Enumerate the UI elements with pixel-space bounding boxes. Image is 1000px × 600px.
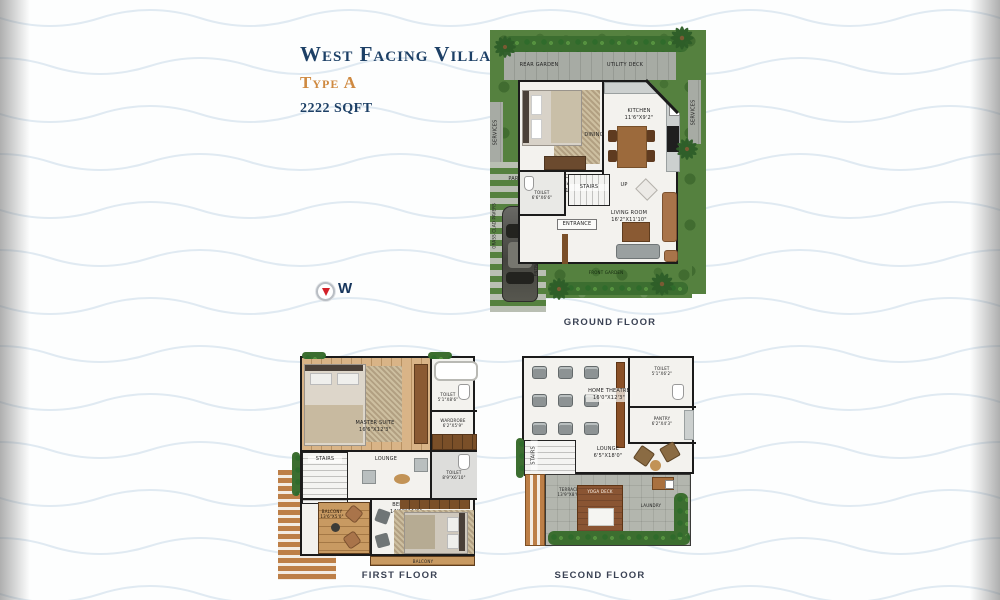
compass-icon — [316, 282, 335, 301]
gf-toilet-label: TOILET 6'6"X6'6" — [522, 190, 562, 201]
sf-vine — [516, 438, 524, 478]
gf-kitchen-label: KITCHEN 11'6"X9'2" — [612, 108, 666, 122]
sf-theatre-seat — [532, 366, 547, 379]
sf-pergola — [525, 474, 545, 546]
gf-entrance-label: ENTRANCE — [558, 220, 596, 229]
gf-wall — [520, 214, 566, 216]
ff-master-label: MASTER SUITE 16'6"X12'3" — [346, 420, 404, 434]
ff-dresser — [414, 364, 428, 444]
gf-chair — [608, 130, 617, 142]
ground-floor-plan: REAR GARDEN UTILITY DECK SERVICES SERVIC… — [488, 22, 712, 316]
sf-wc — [672, 384, 684, 400]
ff-balcony-chair — [342, 530, 361, 549]
palm-tree-icon — [646, 268, 678, 300]
ff-pillow — [447, 517, 459, 532]
ff-lounge-chair — [414, 458, 428, 472]
ff-pillow — [310, 373, 332, 385]
ff-chair — [375, 533, 391, 549]
ff-pillow — [447, 534, 459, 549]
gf-console-table — [562, 234, 568, 268]
sf-theatre-seat — [584, 366, 599, 379]
ff-bathtub — [434, 361, 478, 381]
gf-wall — [602, 82, 604, 174]
gf-bed-blanket — [551, 91, 581, 143]
sf-pantry-label: PANTRY 6'2"X4'3" — [636, 416, 688, 427]
car-rear-window — [506, 272, 534, 284]
gf-sofa-vertical — [662, 192, 677, 242]
gf-utility-deck: REAR GARDEN UTILITY DECK — [504, 52, 676, 80]
gf-bed-headboard — [523, 91, 529, 143]
sf-pantry-counter — [684, 410, 694, 440]
sf-yoga-deck-label: YOGA DECK — [580, 489, 620, 494]
sf-wall — [628, 442, 696, 444]
gf-grass-pavers-label: GRASS CLAD PAVERS — [491, 205, 496, 249]
floorplan-poster: { "header": { "title": "West Facing Vill… — [0, 0, 1000, 600]
gf-chair — [646, 150, 655, 162]
ff-vine — [292, 452, 300, 496]
gf-sofa-horizontal — [616, 244, 660, 259]
ff-toilet-top-label: TOILET 5'1"X8'6" — [430, 392, 466, 403]
gf-dining-label: DINING — [578, 132, 610, 139]
ff-lounge-label: LOUNGE — [366, 456, 406, 463]
sf-theatre-seat — [558, 366, 573, 379]
gf-pillow — [531, 95, 542, 115]
gf-pillow — [531, 119, 542, 139]
ff-wardrobe-cabinets — [432, 434, 477, 450]
gf-armchair — [635, 178, 658, 201]
palm-tree-icon — [672, 134, 702, 164]
ff-balcony-chair — [344, 504, 364, 524]
ff-bed-headboard — [459, 513, 465, 551]
sf-terrace-hedge-right — [674, 493, 688, 537]
gf-chair — [608, 150, 617, 162]
gf-wc — [524, 176, 534, 191]
sf-theatre-seat — [558, 422, 573, 435]
gf-front-garden-label: FRONT GARDEN — [576, 270, 636, 275]
ff-pillow — [337, 373, 359, 385]
ff-master-bed — [304, 364, 366, 446]
ff-wardrobe-label: WARDROBE 6'2"X5'9" — [430, 418, 476, 429]
sf-theatre-seat — [584, 422, 599, 435]
sf-terrace: TERRACE 13'9"X8'9" YOGA DECK LAUNDRY — [545, 474, 691, 546]
gf-up-label: UP — [614, 182, 634, 189]
ff-bottom-balcony: BALCONY — [370, 556, 475, 566]
gf-toilet-room: TOILET 6'6"X6'6" — [520, 172, 564, 214]
gf-rear-hedge — [504, 36, 688, 52]
compass-direction: W — [338, 280, 352, 297]
ground-floor-caption: GROUND FLOOR — [540, 317, 680, 328]
gf-dresser — [544, 156, 586, 170]
ff-bedroom-wardrobe — [400, 500, 470, 509]
ff-bedroom-bed — [404, 512, 468, 554]
sf-washer — [665, 480, 674, 489]
second-floor-caption: SECOND FLOOR — [535, 570, 665, 581]
ff-balcony-table — [331, 523, 340, 532]
ff-bed-blanket — [405, 515, 435, 549]
sf-theatre-label: HOME THEATRE 16'0"X12'3" — [586, 388, 632, 402]
sf-washer-bench — [652, 477, 674, 490]
sf-stairs-label: STAIRS — [531, 440, 538, 470]
ff-lounge-table — [394, 474, 410, 484]
palm-tree-icon — [490, 32, 520, 62]
ff-planter — [428, 352, 452, 359]
sf-theatre-seat — [532, 422, 547, 435]
sf-building: HOME THEATRE 16'0"X12'3" TOILET 5'1"X6'2… — [522, 356, 694, 474]
compass-arrow-icon — [322, 288, 330, 296]
gf-building: BEDROOM (OPTIONAL) 10'6"X11'3" KITCHEN 1… — [518, 80, 678, 264]
sf-terrace-hedge — [548, 531, 690, 545]
ff-toilet2-room: TOILET 8'9"X6'10" — [432, 452, 477, 498]
second-floor-plan: HOME THEATRE 16'0"X12'3" TOILET 5'1"X6'2… — [512, 352, 697, 580]
sf-toilet-label: TOILET 5'1"X6'2" — [636, 366, 688, 377]
first-floor-plan: MASTER SUITE 16'6"X12'3" TOILET 5'1"X8'6… — [278, 352, 483, 582]
sf-laundry-label: LAUNDRY — [630, 503, 672, 508]
sf-lounge-label: LOUNGE 6'5"X18'0" — [584, 446, 632, 460]
sf-wall — [628, 358, 630, 444]
sf-wall — [628, 406, 696, 408]
sf-yoga-deck: YOGA DECK — [577, 485, 623, 537]
gf-chair — [646, 130, 655, 142]
gf-utility-deck-label: UTILITY DECK — [590, 62, 660, 69]
gf-services-right-label: SERVICES — [691, 88, 698, 136]
palm-tree-icon — [544, 274, 574, 304]
gf-coffee-table — [622, 222, 650, 242]
gf-services-left-label: SERVICES — [493, 108, 500, 156]
ff-bed-headboard — [305, 365, 363, 371]
gf-ottoman — [664, 250, 678, 262]
first-floor-caption: FIRST FLOOR — [330, 570, 470, 581]
ff-planter — [302, 352, 326, 359]
ff-balcony-small-label: BALCONY — [401, 559, 445, 564]
ff-wall — [370, 498, 372, 556]
gf-services-left: SERVICES — [490, 102, 503, 162]
sf-theatre-screen — [616, 362, 625, 448]
sf-yoga-mat — [588, 508, 614, 526]
ff-toilet-bottom-label: TOILET 8'9"X6'10" — [432, 470, 476, 481]
sf-theatre-seat — [558, 394, 573, 407]
ff-stairs-label: STAIRS — [308, 456, 342, 463]
gf-stairs-label: STAIRS — [570, 184, 608, 191]
ff-wall — [430, 410, 477, 412]
sf-round-table — [650, 460, 661, 471]
ff-balcony: BALCONY 13'6"X5'0" — [318, 502, 370, 554]
ff-balcony-label: BALCONY 13'6"X5'0" — [319, 509, 345, 520]
ff-lounge-chair — [362, 470, 376, 484]
gf-dining-table — [617, 126, 647, 168]
sf-wicker-chair — [659, 441, 681, 463]
sf-theatre-seat — [532, 394, 547, 407]
gf-bed — [522, 90, 582, 146]
ff-wc — [458, 454, 470, 470]
gf-rear-garden-label: REAR GARDEN — [510, 62, 568, 69]
palm-tree-icon — [666, 22, 698, 54]
